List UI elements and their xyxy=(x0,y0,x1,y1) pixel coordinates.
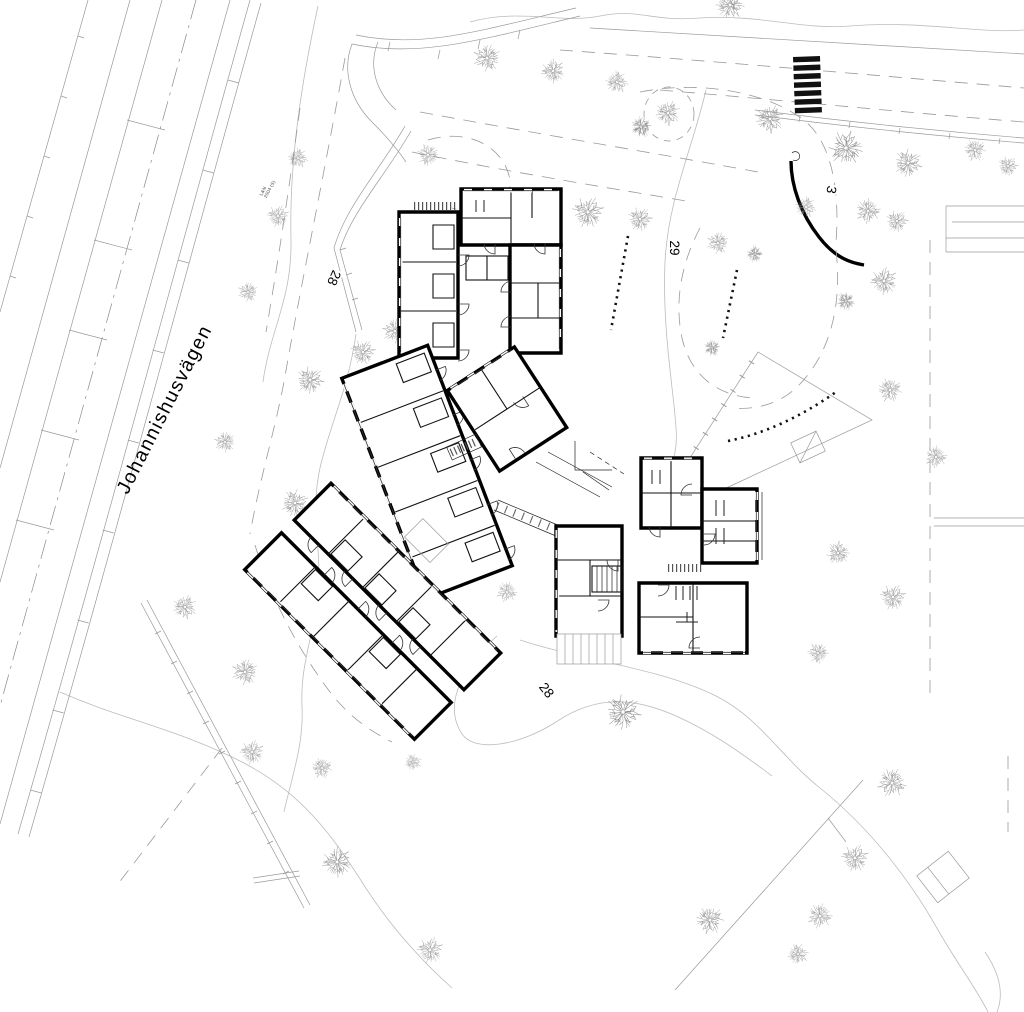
tree-icon xyxy=(598,688,646,736)
tree-icon xyxy=(744,243,766,265)
tree-icon xyxy=(239,740,264,765)
tree-icon xyxy=(995,153,1021,179)
dotted-fences xyxy=(611,236,836,441)
tree-icon xyxy=(702,338,722,358)
tree-icon xyxy=(854,196,884,225)
tree-icon xyxy=(840,844,868,872)
tree-icon xyxy=(868,265,900,297)
tree-icon xyxy=(266,205,289,227)
crosswalk-stripe xyxy=(794,99,821,105)
crosswalk-stripe xyxy=(795,107,822,113)
tree-icon xyxy=(417,144,439,166)
tree-icon xyxy=(703,228,734,259)
tree-icon xyxy=(287,147,309,169)
tree-icon xyxy=(873,373,907,407)
tree-icon xyxy=(888,143,927,182)
tree-icon xyxy=(604,69,629,94)
tree-icon xyxy=(401,750,424,773)
tree-icon xyxy=(836,291,857,312)
tree-icon xyxy=(211,428,240,457)
walkways xyxy=(141,126,411,908)
contour-lines xyxy=(60,6,1024,1012)
tree-icon xyxy=(234,278,262,306)
tree-icon xyxy=(308,753,337,782)
tree-icon xyxy=(784,940,812,968)
crosswalk-stripe xyxy=(794,90,821,96)
tree-icon xyxy=(628,114,654,139)
contour-label-29: 29 xyxy=(667,240,682,255)
tree-icon xyxy=(538,56,568,86)
street-johannishusvagen xyxy=(0,0,392,884)
site-plan-drawing: Johannishusvägen 28 29 28 3 L&N 2004 (S) xyxy=(0,0,1024,1012)
tree-icon xyxy=(624,204,654,234)
crosswalk-stripe xyxy=(793,56,820,62)
contour-label-28-upper: 28 xyxy=(324,268,344,288)
site-plan-page: Johannishusvägen 28 29 28 3 L&N 2004 (S) xyxy=(0,0,1024,1012)
trees-layer xyxy=(171,0,1021,968)
tree-icon xyxy=(291,362,328,399)
crosswalk-stripe xyxy=(794,82,821,88)
tree-icon xyxy=(883,207,911,235)
tree-icon xyxy=(691,900,730,939)
tree-icon xyxy=(806,641,830,665)
tree-icon xyxy=(417,937,443,963)
tree-icon xyxy=(497,581,518,602)
tree-icon xyxy=(807,903,833,929)
crosswalk-stripe xyxy=(794,73,821,79)
tree-icon xyxy=(171,592,199,620)
tree-icon xyxy=(468,39,506,77)
survey-note: L&N 2004 (S) xyxy=(258,177,276,199)
tree-icon xyxy=(348,337,378,366)
building-east-wing xyxy=(556,458,762,664)
tree-icon xyxy=(822,125,869,172)
crosswalk xyxy=(793,56,822,113)
top-road xyxy=(348,2,1024,202)
tree-icon xyxy=(822,538,853,569)
crosswalk-stripe xyxy=(793,65,820,71)
wall-label-3: 3 xyxy=(823,185,839,195)
tree-icon xyxy=(227,654,263,690)
tree-icon xyxy=(570,195,605,230)
tree-icon xyxy=(877,767,909,799)
tree-icon xyxy=(652,97,683,128)
tree-icon xyxy=(318,843,356,881)
retaining-wall xyxy=(791,152,864,265)
tree-icon xyxy=(924,444,950,470)
tree-icon xyxy=(878,583,907,612)
garden-dashed-lines xyxy=(428,87,838,408)
street-label: Johannishusvägen xyxy=(112,321,216,497)
contour-label-28-lower: 28 xyxy=(536,680,557,701)
